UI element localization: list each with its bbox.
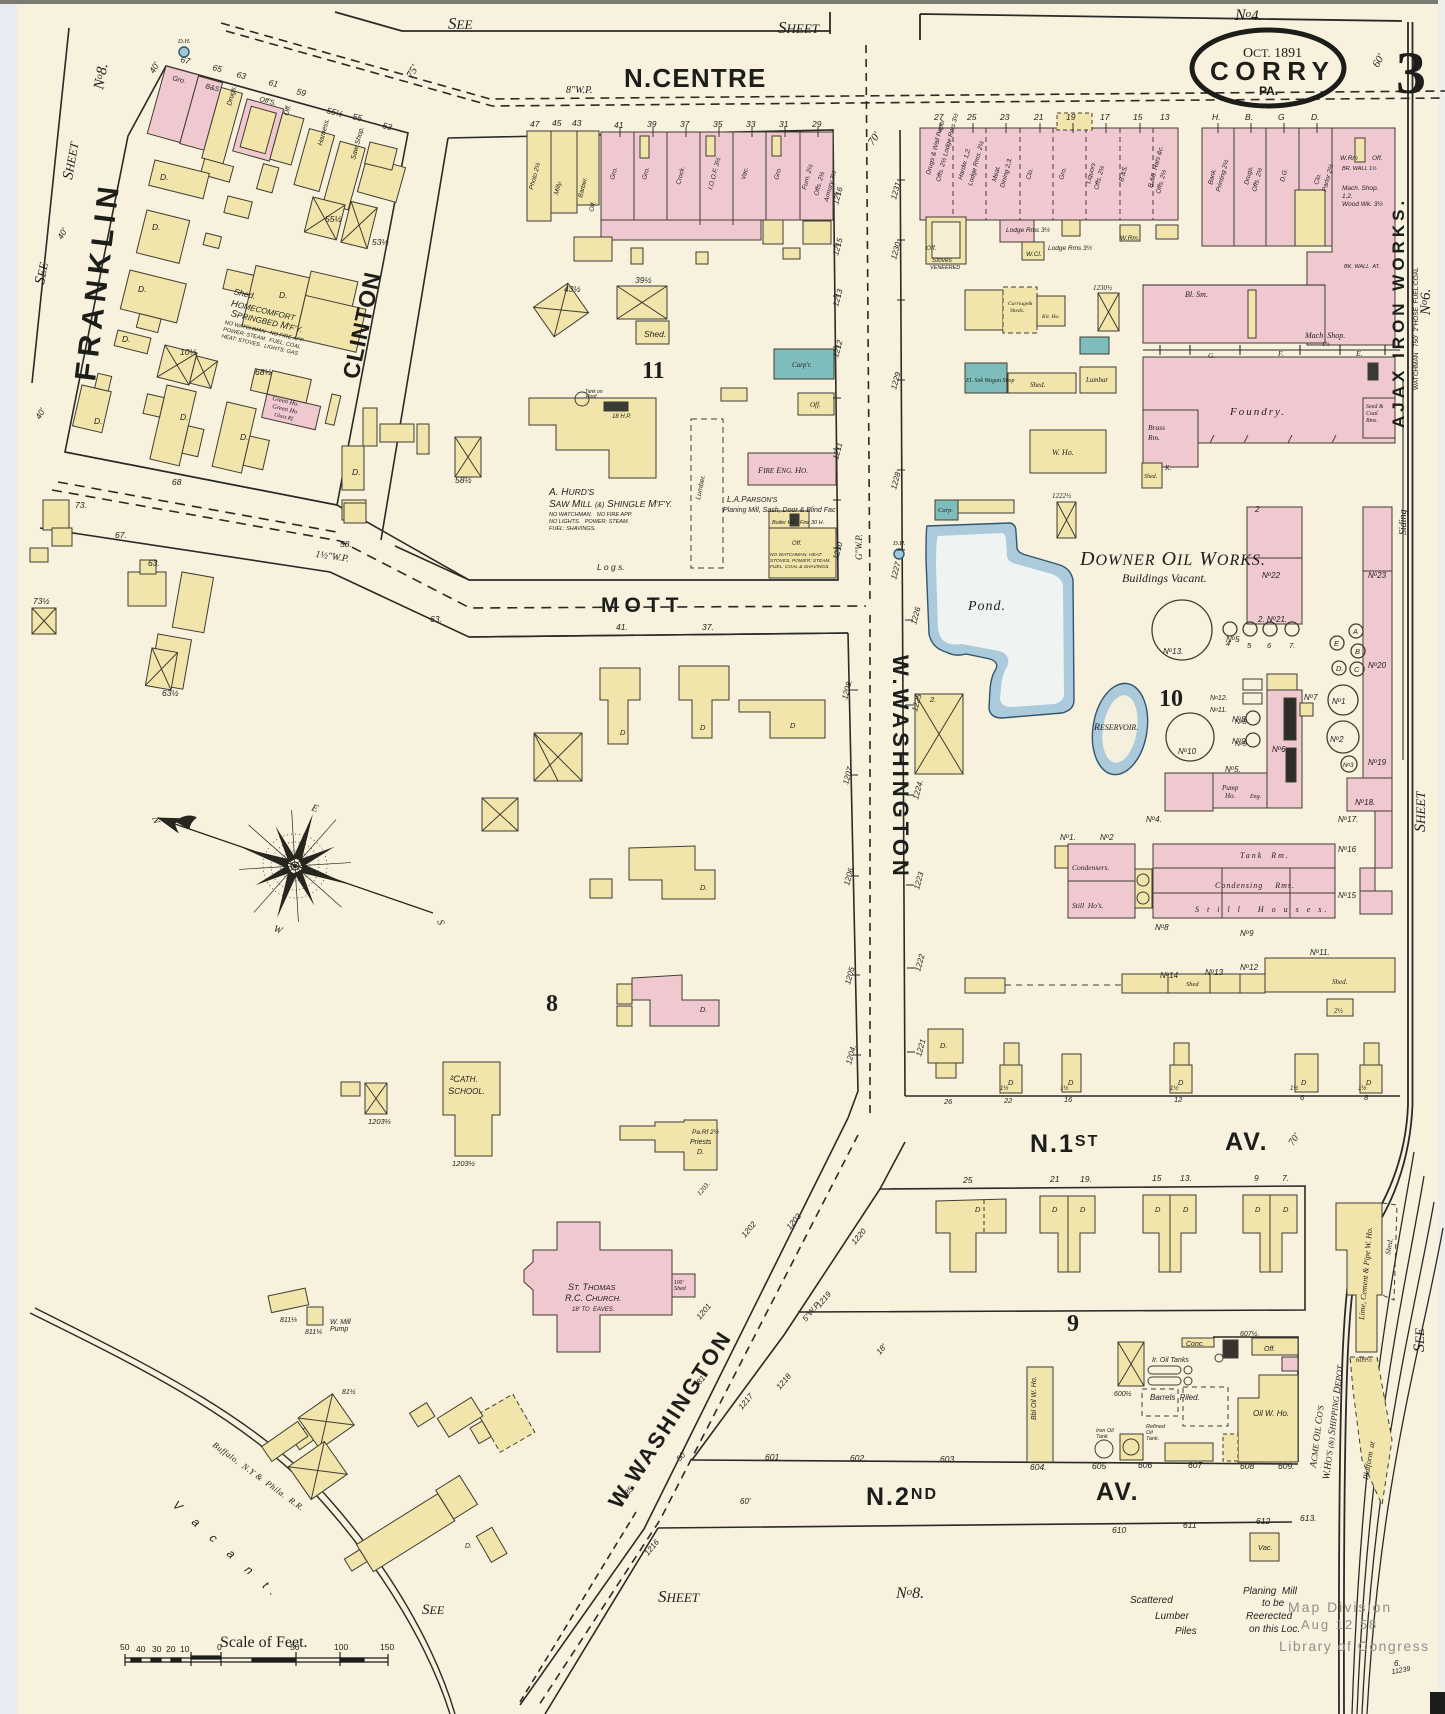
svg-text:No17.: No17.: [1338, 815, 1358, 824]
svg-text:63.: 63.: [148, 558, 160, 568]
svg-text:43½: 43½: [564, 284, 581, 294]
svg-text:Off.: Off.: [926, 245, 937, 252]
svg-text:D.: D.: [138, 284, 147, 294]
svg-text:Lumber: Lumber: [1155, 1611, 1190, 1622]
svg-text:22: 22: [1003, 1096, 1013, 1105]
svg-text:G"W.P.: G"W.P.: [854, 534, 864, 560]
svg-text:SEE: SEE: [448, 14, 472, 33]
svg-text:No13: No13: [1205, 968, 1224, 977]
svg-text:Map Division: Map Division: [1288, 1599, 1392, 1615]
svg-text:60': 60': [740, 1497, 751, 1506]
svg-text:Library of Congress: Library of Congress: [1279, 1638, 1430, 1654]
svg-text:B: B: [1355, 647, 1360, 656]
svg-text:Mach Shop.: Mach Shop.: [1304, 331, 1345, 340]
svg-text:No22: No22: [1262, 571, 1281, 580]
svg-text:31: 31: [779, 119, 789, 129]
svg-text:D: D: [1366, 1078, 1372, 1087]
svg-text:609½: 609½: [1356, 1356, 1373, 1364]
svg-text:Seed &: Seed &: [1366, 404, 1384, 410]
svg-text:1½: 1½: [1000, 1085, 1008, 1092]
svg-text:D.: D.: [94, 416, 103, 426]
svg-text:BK. WALL AT.: BK. WALL AT.: [1344, 264, 1380, 270]
svg-text:RESERVOIR.: RESERVOIR.: [1093, 723, 1138, 733]
svg-text:D: D: [1178, 1078, 1184, 1087]
svg-text:81½: 81½: [342, 1388, 356, 1396]
svg-text:11: 11: [642, 358, 665, 384]
svg-text:7.: 7.: [1289, 641, 1295, 650]
svg-text:S t i l l H o u s e s.: S t i l l H o u s e s.: [1195, 905, 1329, 914]
svg-text:2.: 2.: [929, 695, 936, 704]
svg-text:33: 33: [746, 119, 756, 129]
svg-text:No20: No20: [1368, 661, 1387, 670]
svg-text:R.C. CHURCH.: R.C. CHURCH.: [565, 1293, 621, 1303]
svg-text:No18.: No18.: [1355, 798, 1375, 807]
svg-text:13: 13: [1160, 112, 1170, 122]
svg-text:Bbl Oil W. Ho.: Bbl Oil W. Ho.: [1031, 1376, 1038, 1420]
svg-text:AV.: AV.: [1096, 1478, 1140, 1506]
svg-text:Rms.: Rms.: [1365, 418, 1378, 424]
svg-text:601: 601: [765, 1452, 779, 1462]
svg-text:607½.: 607½.: [1240, 1330, 1260, 1338]
svg-text:Bl. Sm.: Bl. Sm.: [1185, 290, 1208, 299]
svg-text:10½: 10½: [180, 347, 197, 357]
svg-text:1,2.: 1,2.: [1342, 193, 1353, 200]
svg-text:on this Loc.: on this Loc.: [1249, 1624, 1300, 1635]
svg-text:D: D: [790, 721, 796, 730]
svg-text:610: 610: [1112, 1525, 1126, 1535]
svg-text:67.: 67.: [115, 530, 127, 540]
svg-text:Piles: Piles: [1175, 1626, 1197, 1637]
svg-text:D: D: [1255, 1205, 1261, 1214]
svg-text:D: D: [1183, 1205, 1189, 1214]
svg-text:Shed.: Shed.: [1144, 474, 1157, 480]
svg-text:No11.: No11.: [1210, 707, 1227, 714]
svg-text:Tank.: Tank.: [1146, 1436, 1159, 1442]
svg-text:26: 26: [943, 1097, 953, 1106]
svg-text:Fire 30 H.: Fire 30 H.: [800, 520, 824, 526]
svg-text:Eng.: Eng.: [1249, 794, 1261, 800]
svg-text:Condensing Rms.: Condensing Rms.: [1215, 881, 1295, 890]
svg-text:No23: No23: [1368, 571, 1387, 580]
svg-text:Mach. Shop.: Mach. Shop.: [1342, 185, 1379, 192]
svg-text:VENEERED: VENEERED: [930, 265, 960, 271]
svg-text:D.: D.: [160, 172, 169, 182]
svg-text:Off.: Off.: [810, 401, 821, 409]
svg-text:No19: No19: [1368, 758, 1387, 767]
svg-text:10: 10: [180, 1644, 190, 1654]
svg-text:Planing Mill, Sash, Door & Bli: Planing Mill, Sash, Door & Blind Fac: [723, 507, 836, 514]
svg-text:CORRY: CORRY: [1210, 56, 1335, 86]
svg-text:D.: D.: [180, 412, 189, 422]
svg-text:1203½: 1203½: [452, 1159, 476, 1168]
svg-text:L.A.PARSON'S: L.A.PARSON'S: [727, 495, 778, 504]
svg-text:FIRE ENG. HO.: FIRE ENG. HO.: [757, 465, 808, 475]
svg-text:Siding: Siding: [1398, 509, 1409, 535]
svg-text:G.: G.: [1208, 351, 1215, 360]
svg-text:D.: D.: [940, 1041, 948, 1050]
svg-text:609.: 609.: [1278, 1461, 1295, 1471]
svg-text:25: 25: [962, 1175, 973, 1185]
svg-text:Planing Mill: Planing Mill: [1243, 1586, 1298, 1597]
svg-text:DOWNER OIL WORKS.: DOWNER OIL WORKS.: [1079, 548, 1266, 570]
svg-text:SAW MILL (&) SHINGLE M'F'Y.: SAW MILL (&) SHINGLE M'F'Y.: [549, 499, 672, 510]
svg-text:A. HURD'S: A. HURD'S: [548, 487, 594, 498]
svg-text:No11.: No11.: [1310, 948, 1330, 957]
svg-text:No12.: No12.: [1210, 695, 1228, 702]
svg-text:613.: 613.: [1300, 1513, 1317, 1523]
svg-text:No3: No3: [1343, 762, 1354, 769]
svg-text:SCHOOL.: SCHOOL.: [448, 1086, 485, 1097]
svg-text:68½: 68½: [255, 367, 272, 377]
svg-text:63.: 63.: [430, 614, 442, 624]
svg-text:18' TO EAVES.: 18' TO EAVES.: [572, 1307, 614, 1313]
svg-text:C: C: [1354, 665, 1360, 674]
svg-text:Pump: Pump: [330, 1326, 348, 1333]
svg-text:21: 21: [1049, 1174, 1060, 1184]
svg-text:No12: No12: [1240, 963, 1259, 972]
svg-text:15: 15: [1152, 1173, 1162, 1183]
svg-text:PA.: PA.: [1259, 84, 1278, 98]
svg-text:Aug 12 58: Aug 12 58: [1301, 1617, 1378, 1632]
svg-text:Shed: Shed: [1186, 981, 1199, 988]
svg-text:10: 10: [1159, 686, 1183, 712]
svg-text:23: 23: [999, 112, 1010, 122]
svg-text:W.Rm: W.Rm: [1340, 155, 1358, 162]
svg-text:D.: D.: [697, 1149, 704, 1156]
svg-text:G: G: [1278, 112, 1285, 122]
svg-text:608: 608: [1240, 1461, 1254, 1471]
svg-text:604.: 604.: [1030, 1462, 1047, 1472]
svg-text:Oil W. Ho.: Oil W. Ho.: [1253, 1409, 1289, 1418]
svg-text:2. No21.: 2. No21.: [1257, 615, 1287, 624]
svg-text:Ir. Oil Tanks: Ir. Oil Tanks: [1152, 1357, 1189, 1364]
svg-text:Carp'r.: Carp'r.: [792, 361, 812, 369]
svg-text:ST. THOMAS: ST. THOMAS: [568, 1282, 616, 1292]
svg-text:Lodge Rms 3½: Lodge Rms 3½: [1048, 244, 1093, 252]
svg-text:Sheds.: Sheds.: [1010, 308, 1024, 314]
svg-text:15: 15: [1133, 112, 1143, 122]
svg-text:53½: 53½: [372, 237, 389, 247]
svg-text:NO WATCHMAN. NO FIRE APP.: NO WATCHMAN. NO FIRE APP.: [549, 512, 632, 518]
svg-text:47: 47: [530, 119, 540, 129]
svg-text:SEE: SEE: [422, 1602, 445, 1618]
svg-text:AV.: AV.: [1225, 1128, 1269, 1156]
svg-text:Carp.: Carp.: [938, 507, 953, 514]
svg-text:39½: 39½: [635, 275, 652, 285]
svg-text:27: 27: [933, 112, 944, 122]
svg-text:1222½: 1222½: [1052, 492, 1072, 500]
svg-text:Off.: Off.: [1264, 1346, 1275, 1353]
svg-text:D.: D.: [240, 432, 249, 442]
svg-text:43: 43: [572, 118, 582, 128]
svg-text:Condensers.: Condensers.: [1072, 863, 1109, 872]
svg-text:55½: 55½: [325, 214, 342, 224]
svg-text:73.: 73.: [75, 500, 87, 510]
svg-text:E.: E.: [1355, 349, 1363, 358]
svg-text:SHEET: SHEET: [1412, 791, 1429, 832]
svg-text:811¼: 811¼: [305, 1329, 322, 1336]
svg-text:Wood Wk. 3½: Wood Wk. 3½: [1342, 200, 1383, 208]
svg-text:0: 0: [217, 1642, 222, 1652]
svg-text:D.: D.: [1311, 112, 1320, 122]
svg-text:D: D: [1301, 1078, 1307, 1087]
svg-text:A: A: [1352, 627, 1358, 636]
svg-text:603: 603: [940, 1454, 954, 1464]
svg-text:1½: 1½: [1322, 341, 1330, 348]
svg-text:4: 4: [1226, 639, 1230, 648]
svg-text:Barrels Piled.: Barrels Piled.: [1150, 1393, 1200, 1402]
svg-text:B.: B.: [1245, 112, 1253, 122]
svg-text:605: 605: [1092, 1461, 1106, 1471]
svg-text:13.: 13.: [1180, 1173, 1192, 1183]
svg-text:50: 50: [290, 1642, 300, 1652]
svg-text:25: 25: [966, 112, 977, 122]
svg-text:Still Ho's.: Still Ho's.: [1072, 901, 1104, 910]
svg-text:607: 607: [1188, 1460, 1202, 1470]
svg-text:BR. WALL 1½: BR. WALL 1½: [1342, 165, 1377, 172]
svg-text:D: D: [1008, 1078, 1014, 1087]
svg-text:Shed.: Shed.: [1030, 381, 1046, 389]
svg-text:SEE: SEE: [1411, 1328, 1428, 1352]
svg-text:No15: No15: [1338, 891, 1357, 900]
svg-text:Brass: Brass: [1148, 423, 1165, 432]
svg-text:1230½: 1230½: [1093, 284, 1113, 292]
svg-text:No9: No9: [1235, 741, 1247, 748]
svg-text:Boiler Ho.: Boiler Ho.: [772, 520, 796, 526]
svg-text:No14: No14: [1160, 971, 1179, 980]
svg-text:L o g s.: L o g s.: [597, 562, 625, 572]
svg-text:35: 35: [713, 119, 723, 129]
svg-text:1½: 1½: [1358, 1085, 1366, 1092]
svg-text:41: 41: [614, 120, 624, 130]
svg-text:45: 45: [552, 118, 562, 128]
svg-text:D.: D.: [152, 222, 161, 232]
svg-text:19: 19: [1066, 112, 1076, 122]
svg-text:D: D: [1283, 1205, 1289, 1214]
svg-text:Priests: Priests: [690, 1139, 712, 1146]
svg-text:606: 606: [1138, 1460, 1152, 1470]
svg-text:Lodge Rms 3½: Lodge Rms 3½: [1006, 226, 1051, 234]
svg-text:AJAX IRON WORKS.: AJAX IRON WORKS.: [1389, 197, 1408, 428]
svg-text:Rm.: Rm.: [1147, 433, 1160, 442]
svg-text:D: D: [1068, 1078, 1074, 1087]
svg-text:D: D: [1080, 1205, 1086, 1214]
svg-text:68: 68: [172, 477, 182, 487]
svg-text:WATCHMAN 750' 2"HOSE FUEL:: WATCHMAN 750' 2"HOSE FUEL:COAL: [1413, 267, 1420, 390]
svg-text:D: D: [700, 723, 706, 732]
svg-text:Buildings Vacant.: Buildings Vacant.: [1122, 571, 1207, 585]
svg-text:1½: 1½: [1170, 1085, 1178, 1092]
svg-text:NO LIGHTS. POWER: STEAM.: NO LIGHTS. POWER: STEAM.: [549, 519, 629, 525]
svg-text:602.: 602.: [850, 1453, 867, 1463]
svg-text:W.WASHINGTON: W.WASHINGTON: [888, 655, 913, 880]
svg-text:30: 30: [152, 1644, 162, 1654]
svg-text:W.Cl.: W.Cl.: [1026, 251, 1042, 258]
svg-text:41.: 41.: [616, 622, 628, 632]
svg-text:Vac.: Vac.: [1258, 1543, 1273, 1552]
svg-text:16: 16: [1064, 1095, 1073, 1104]
svg-text:19.: 19.: [1080, 1174, 1092, 1184]
svg-text:F.: F.: [1277, 349, 1284, 358]
svg-text:D.: D.: [700, 883, 708, 892]
svg-text:D.: D.: [122, 334, 131, 344]
svg-text:8"W.P.: 8"W.P.: [566, 85, 592, 96]
svg-text:D: D: [1155, 1205, 1161, 1214]
svg-text:Conc.: Conc.: [1186, 1341, 1204, 1348]
svg-text:H.: H.: [1212, 112, 1221, 122]
svg-text:D.: D.: [279, 290, 288, 300]
svg-text:37: 37: [680, 119, 690, 129]
svg-text:D.H.: D.H.: [177, 38, 191, 45]
svg-text:611: 611: [1183, 1520, 1197, 1530]
svg-text:D.: D.: [1336, 664, 1344, 673]
svg-text:600½: 600½: [1114, 1390, 1132, 1398]
svg-text:18 H.P.: 18 H.P.: [612, 414, 631, 420]
svg-text:Carriage&: Carriage&: [1008, 301, 1033, 307]
svg-text:2½: 2½: [1334, 1007, 1344, 1015]
svg-text:50: 50: [120, 1642, 130, 1652]
svg-text:to be: to be: [1262, 1598, 1285, 1609]
svg-text:Pa.Rf 2½: Pa.Rf 2½: [692, 1128, 720, 1136]
svg-text:612: 612: [1256, 1516, 1270, 1526]
svg-text:7.: 7.: [1282, 1173, 1289, 1183]
svg-text:D.: D.: [700, 1005, 708, 1014]
svg-text:Kit. Ho.: Kit. Ho.: [1041, 314, 1060, 320]
svg-text:SHEET: SHEET: [658, 1587, 700, 1606]
svg-text:21: 21: [1033, 112, 1044, 122]
svg-text:1½: 1½: [1290, 1085, 1298, 1092]
svg-text:No13.: No13.: [1163, 647, 1183, 656]
svg-text:58½: 58½: [455, 475, 472, 485]
svg-text:39: 39: [647, 119, 657, 129]
svg-text:Stoves: Stoves: [932, 257, 953, 264]
svg-text:63½: 63½: [162, 688, 179, 698]
svg-text:Tank Rm.: Tank Rm.: [1240, 851, 1290, 860]
svg-text:FUEL: SHAVINGS.: FUEL: SHAVINGS.: [549, 526, 596, 532]
svg-text:D.: D.: [465, 1543, 472, 1550]
svg-text:811⅓: 811⅓: [280, 1317, 297, 1324]
svg-text:Ho.: Ho.: [1224, 792, 1236, 800]
svg-text:No10: No10: [1178, 747, 1197, 756]
svg-text:100: 100: [334, 1642, 348, 1652]
svg-text:Foundry.: Foundry.: [1229, 406, 1286, 418]
svg-text:Lumbar: Lumbar: [1085, 376, 1108, 384]
svg-text:Shed.: Shed.: [644, 329, 666, 339]
svg-text:D.H.: D.H.: [892, 540, 906, 547]
svg-text:20: 20: [166, 1644, 176, 1654]
svg-text:2: 2: [1254, 505, 1260, 514]
svg-text:W. Mill: W. Mill: [330, 1319, 351, 1326]
svg-text:NO WATCHMAN. HEAT:: NO WATCHMAN. HEAT:: [770, 552, 823, 558]
svg-text:D: D: [975, 1205, 981, 1214]
svg-text:MOTT: MOTT: [601, 594, 684, 617]
svg-text:D: D: [1052, 1205, 1058, 1214]
svg-text:Off.: Off.: [792, 541, 802, 547]
svg-text:1203⅓: 1203⅓: [368, 1117, 391, 1126]
svg-text:3: 3: [1396, 40, 1426, 106]
svg-text:12: 12: [1174, 1095, 1183, 1104]
svg-text:40: 40: [136, 1644, 146, 1654]
svg-text:29: 29: [811, 119, 822, 129]
svg-text:Reerected: Reerected: [1246, 1611, 1293, 1622]
svg-text:Coal: Coal: [1366, 411, 1378, 417]
svg-text:W.Rm.: W.Rm.: [1120, 235, 1140, 242]
svg-text:9: 9: [1254, 1173, 1259, 1183]
svg-text:Off.: Off.: [1372, 155, 1383, 162]
svg-text:Tank: Tank: [1096, 1434, 1108, 1440]
svg-text:No16: No16: [1338, 845, 1357, 854]
svg-text:N.CENTRE: N.CENTRE: [624, 63, 767, 93]
svg-text:STOVES. POWER: STEAM.: STOVES. POWER: STEAM.: [770, 558, 831, 564]
svg-text:²CATH.: ²CATH.: [450, 1074, 478, 1085]
svg-text:K.: K.: [1164, 464, 1172, 472]
svg-text:17: 17: [1100, 112, 1110, 122]
svg-text:1½: 1½: [1060, 1085, 1068, 1092]
svg-text:El. Snk Wagon Shop: El. Snk Wagon Shop: [965, 378, 1014, 384]
svg-text:37.: 37.: [702, 622, 714, 632]
svg-text:8: 8: [546, 991, 558, 1017]
svg-text:Shed.: Shed.: [1332, 978, 1348, 986]
svg-text:FUEL: COAL & SHAVINGS.: FUEL: COAL & SHAVINGS.: [770, 564, 830, 570]
svg-text:150: 150: [380, 1642, 394, 1652]
svg-text:D: D: [620, 728, 626, 737]
svg-text:9: 9: [1067, 1311, 1079, 1337]
svg-text:Scattered: Scattered: [1130, 1595, 1173, 1606]
svg-text:W. Ho.: W. Ho.: [1052, 448, 1074, 457]
svg-text:73½: 73½: [33, 596, 50, 606]
svg-text:Shed: Shed: [674, 1286, 686, 1292]
svg-text:Roof: Roof: [586, 394, 597, 400]
svg-text:No8: No8: [1235, 719, 1247, 726]
svg-text:58.: 58.: [340, 539, 352, 549]
svg-text:D.: D.: [352, 467, 361, 477]
svg-text:Pond.: Pond.: [967, 599, 1006, 614]
svg-text:SHEET: SHEET: [778, 18, 820, 37]
svg-text:Pump: Pump: [1221, 784, 1239, 792]
